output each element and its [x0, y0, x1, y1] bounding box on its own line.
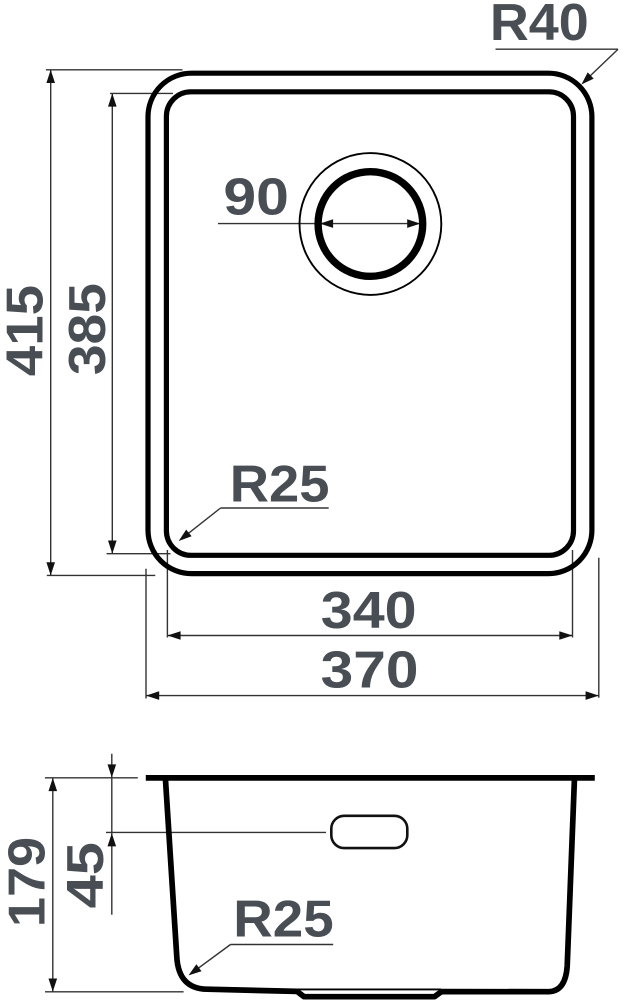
svg-text:415: 415	[0, 285, 54, 376]
svg-text:385: 385	[59, 283, 117, 375]
svg-text:R25: R25	[230, 456, 330, 514]
svg-text:45: 45	[57, 842, 115, 908]
svg-text:R25: R25	[233, 891, 334, 949]
svg-text:90: 90	[223, 169, 289, 227]
svg-text:370: 370	[321, 642, 419, 700]
svg-text:R40: R40	[490, 0, 589, 52]
svg-text:340: 340	[321, 582, 417, 640]
svg-text:179: 179	[0, 837, 56, 927]
